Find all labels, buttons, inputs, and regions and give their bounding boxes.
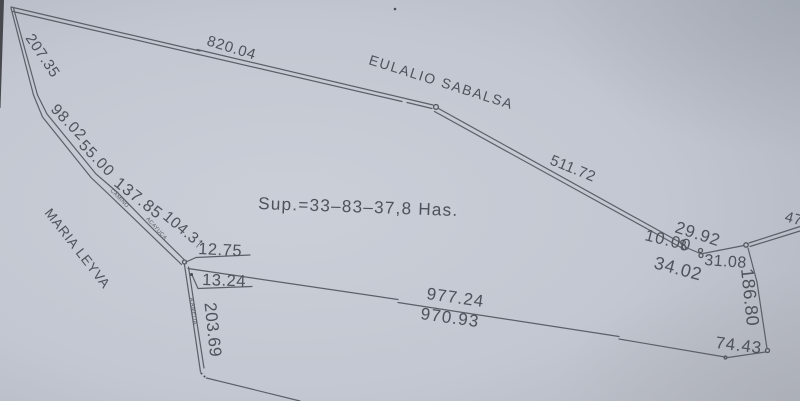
svg-text:13.24: 13.24 [202,271,246,291]
svg-text:12.75: 12.75 [198,240,243,260]
